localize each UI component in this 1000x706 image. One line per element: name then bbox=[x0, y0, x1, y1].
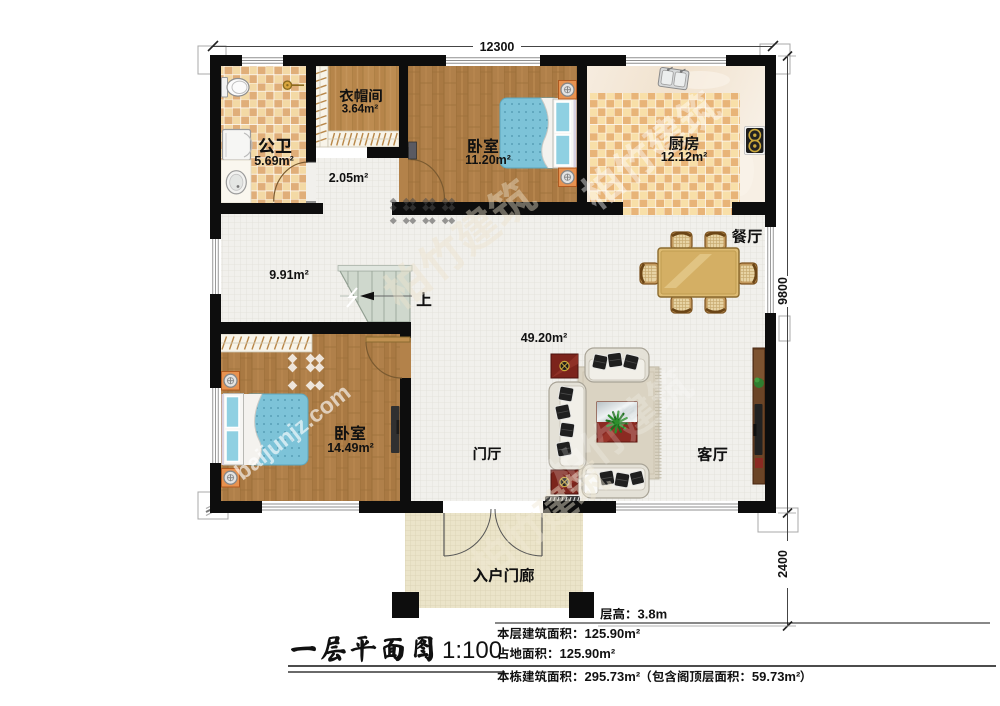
svg-text:2400: 2400 bbox=[776, 550, 790, 578]
svg-text:9.91m²: 9.91m² bbox=[269, 268, 309, 282]
svg-text:295.73m²: 295.73m² bbox=[585, 669, 641, 684]
svg-text:2.05m²: 2.05m² bbox=[329, 171, 369, 185]
svg-text:3.64m²: 3.64m² bbox=[342, 104, 379, 116]
svg-text:1:100: 1:100 bbox=[442, 637, 502, 664]
svg-text:5.69m²: 5.69m² bbox=[254, 154, 294, 168]
svg-text:12.12m²: 12.12m² bbox=[661, 150, 708, 164]
svg-text:125.90m²: 125.90m² bbox=[560, 646, 616, 661]
svg-text:14.49m²: 14.49m² bbox=[327, 441, 374, 455]
svg-text:12300: 12300 bbox=[480, 40, 515, 54]
svg-text:49.20m²: 49.20m² bbox=[521, 331, 568, 345]
svg-text:9800: 9800 bbox=[776, 277, 790, 305]
svg-text:3.8m: 3.8m bbox=[638, 607, 668, 622]
svg-text:125.90m²: 125.90m² bbox=[585, 626, 641, 641]
svg-text:59.73m²: 59.73m² bbox=[752, 669, 801, 684]
svg-text:11.20m²: 11.20m² bbox=[465, 153, 511, 167]
